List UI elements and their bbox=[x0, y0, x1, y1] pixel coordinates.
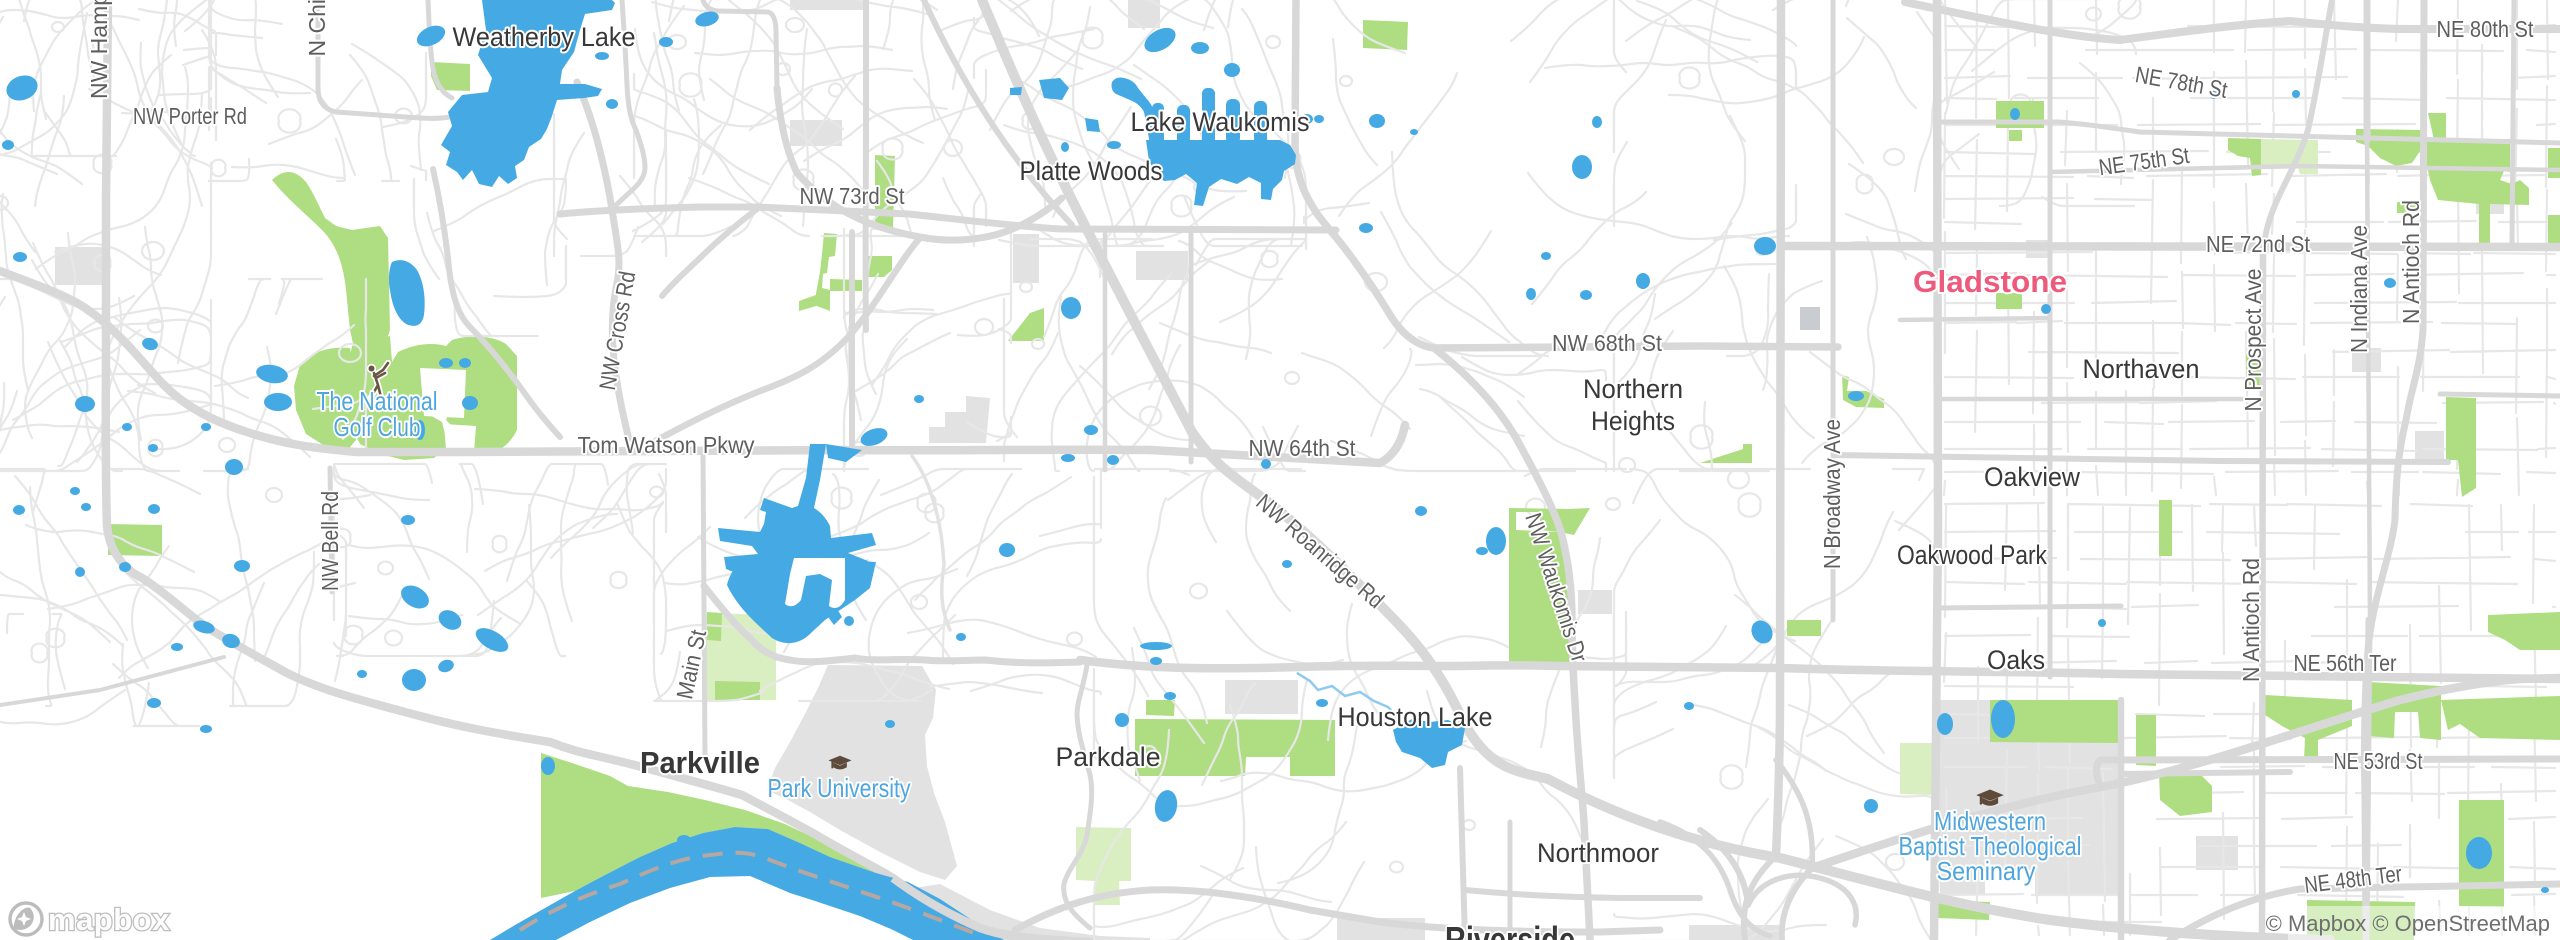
svg-text:Oakwood Park: Oakwood Park bbox=[1897, 540, 2047, 570]
svg-text:Platte Woods: Platte Woods bbox=[1020, 156, 1163, 186]
svg-text:Oakview: Oakview bbox=[1984, 462, 2080, 492]
svg-text:NE 80th St: NE 80th St bbox=[2437, 16, 2535, 42]
svg-text:Park University: Park University bbox=[768, 773, 911, 803]
svg-text:Riverside: Riverside bbox=[1445, 919, 1575, 940]
svg-text:Golf Club: Golf Club bbox=[334, 412, 421, 442]
svg-text:Northaven: Northaven bbox=[2083, 354, 2200, 384]
svg-text:NW Bell Rd: NW Bell Rd bbox=[317, 491, 343, 591]
svg-text:NW 68th St: NW 68th St bbox=[1552, 330, 1663, 356]
svg-text:NW 64th St: NW 64th St bbox=[1249, 435, 1357, 461]
svg-text:Lake Waukomis: Lake Waukomis bbox=[1131, 107, 1310, 137]
svg-text:Parkdale: Parkdale bbox=[1056, 742, 1161, 772]
svg-text:Tom Watson Pkwy: Tom Watson Pkwy bbox=[578, 432, 755, 458]
svg-text:NW Porter Rd: NW Porter Rd bbox=[133, 103, 247, 129]
svg-text:mapbox: mapbox bbox=[48, 902, 170, 937]
svg-text:NE 72nd St: NE 72nd St bbox=[2206, 231, 2311, 257]
svg-text:Houston Lake: Houston Lake bbox=[1338, 702, 1493, 732]
svg-text:Oaks: Oaks bbox=[1987, 645, 2045, 675]
svg-text:N Broadway Ave: N Broadway Ave bbox=[1819, 419, 1845, 569]
svg-text:N Chilt: N Chilt bbox=[304, 0, 330, 57]
svg-text:Heights: Heights bbox=[1591, 406, 1675, 436]
svg-text:Northmoor: Northmoor bbox=[1537, 838, 1659, 868]
svg-text:N Antioch Rd: N Antioch Rd bbox=[2398, 200, 2424, 324]
svg-text:Weatherby Lake: Weatherby Lake bbox=[453, 22, 636, 52]
svg-text:NE 53rd St: NE 53rd St bbox=[2334, 748, 2423, 774]
svg-text:Gladstone: Gladstone bbox=[1913, 264, 2067, 299]
svg-text:N Antioch Rd: N Antioch Rd bbox=[2238, 558, 2264, 682]
svg-text:N Indiana Ave: N Indiana Ave bbox=[2346, 225, 2372, 353]
svg-text:Parkville: Parkville bbox=[640, 745, 760, 780]
svg-text:NW 73rd St: NW 73rd St bbox=[800, 183, 906, 209]
svg-text:N Prospect Ave: N Prospect Ave bbox=[2240, 269, 2266, 412]
svg-text:NW Hamp: NW Hamp bbox=[86, 0, 112, 99]
svg-text:© Mapbox © OpenStreetMap: © Mapbox © OpenStreetMap bbox=[2266, 911, 2550, 936]
svg-text:Northern: Northern bbox=[1583, 374, 1683, 404]
svg-text:Seminary: Seminary bbox=[1937, 856, 2036, 886]
svg-text:NE 56th Ter: NE 56th Ter bbox=[2294, 650, 2397, 676]
